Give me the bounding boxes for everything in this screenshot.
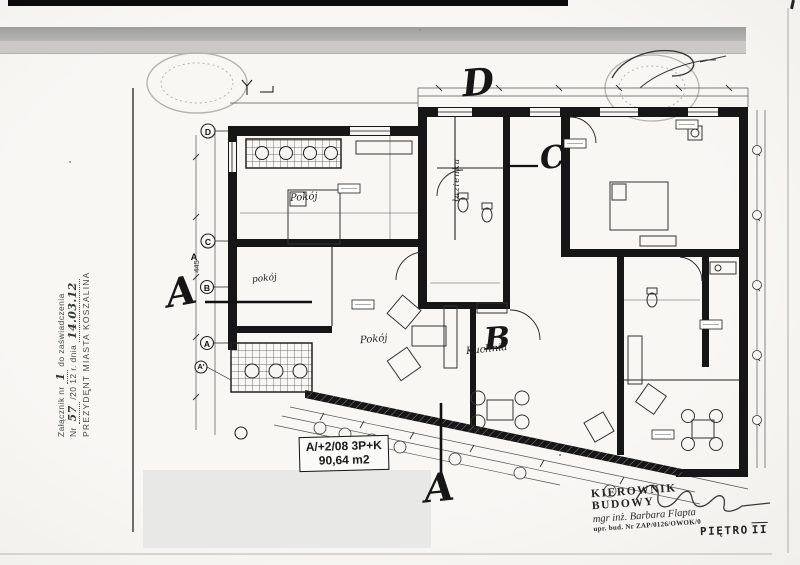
stamp-l2-value: 57 [66, 402, 80, 424]
floor-note: PIĘTROII [700, 523, 768, 538]
partitions-and-doors [332, 117, 740, 380]
grid-marker-a-prime: A' [195, 362, 207, 371]
grid-marker-b: B [201, 283, 213, 293]
stamp-l1-suffix: do zaświadczenia [56, 293, 66, 367]
scanned-floor-plan-page: Załącznik nr 1 do zaświadczenia Nr 57 /2… [0, 0, 800, 565]
grid-marker-d: D [202, 127, 214, 137]
room-label-bathroom: łazienka [452, 158, 462, 202]
balcony-top-left [246, 139, 341, 168]
handwritten-letter-c: C [538, 142, 566, 176]
handwritten-letter-a-side: A [163, 271, 200, 315]
grid-marker-c: C [202, 237, 214, 247]
stamp-l2-label: Nr [68, 427, 78, 437]
stamp-l2-date: 14.03.12 [66, 279, 80, 342]
stamp-line-2: Nr 57 /20 12 r. dnia 14.03.12 [67, 265, 79, 437]
balcony-left [231, 343, 312, 392]
room-label-top-left: Pokój [290, 191, 318, 204]
handwritten-scrawl-over-stamp [612, 51, 726, 88]
apartment-label-box: A/+2/08 3P+K 90,64 m2 [299, 435, 390, 472]
stamp-l1-value: 1 [54, 370, 68, 384]
apartment-code: A/+2/08 3P+K [300, 438, 388, 454]
floor-roman: II [752, 523, 769, 537]
stamp-line-3: PREZYDENT MIASTA KOSZALINA [80, 265, 92, 437]
apartment-area: 90,64 m2 [300, 452, 388, 468]
grid-marker-a: A [201, 339, 213, 349]
stamp-l2-mid: /20 12 r. dnia [68, 345, 78, 400]
attachment-stamp-text: Załącznik nr 1 do zaświadczenia Nr 57 /2… [55, 265, 92, 437]
handwritten-letter-d: D [460, 63, 495, 103]
floor-word: PIĘTRO [700, 523, 749, 538]
stamp-l1-label: Załącznik nr [56, 386, 66, 437]
dimension-445: 445 [192, 260, 201, 273]
redacted-area [143, 470, 431, 548]
handwritten-letter-a-bottom: A [422, 468, 456, 510]
round-stamp-left-icon [147, 53, 247, 113]
